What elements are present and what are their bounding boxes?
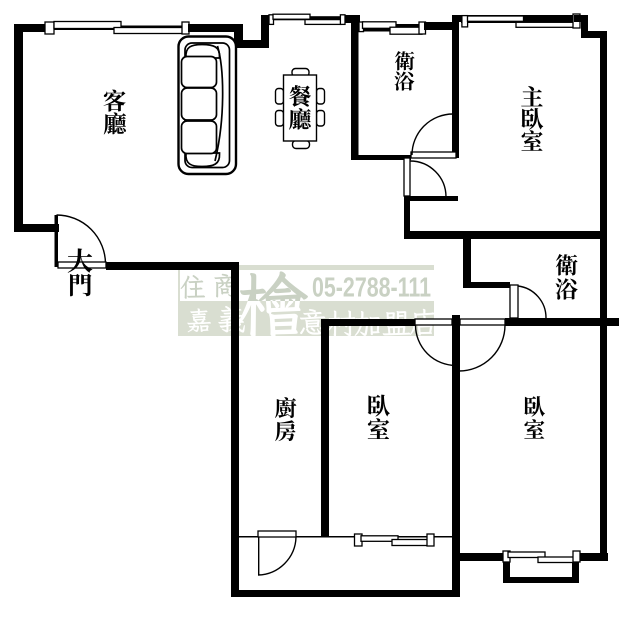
svg-text:05-2788-111: 05-2788-111 [312,272,431,303]
